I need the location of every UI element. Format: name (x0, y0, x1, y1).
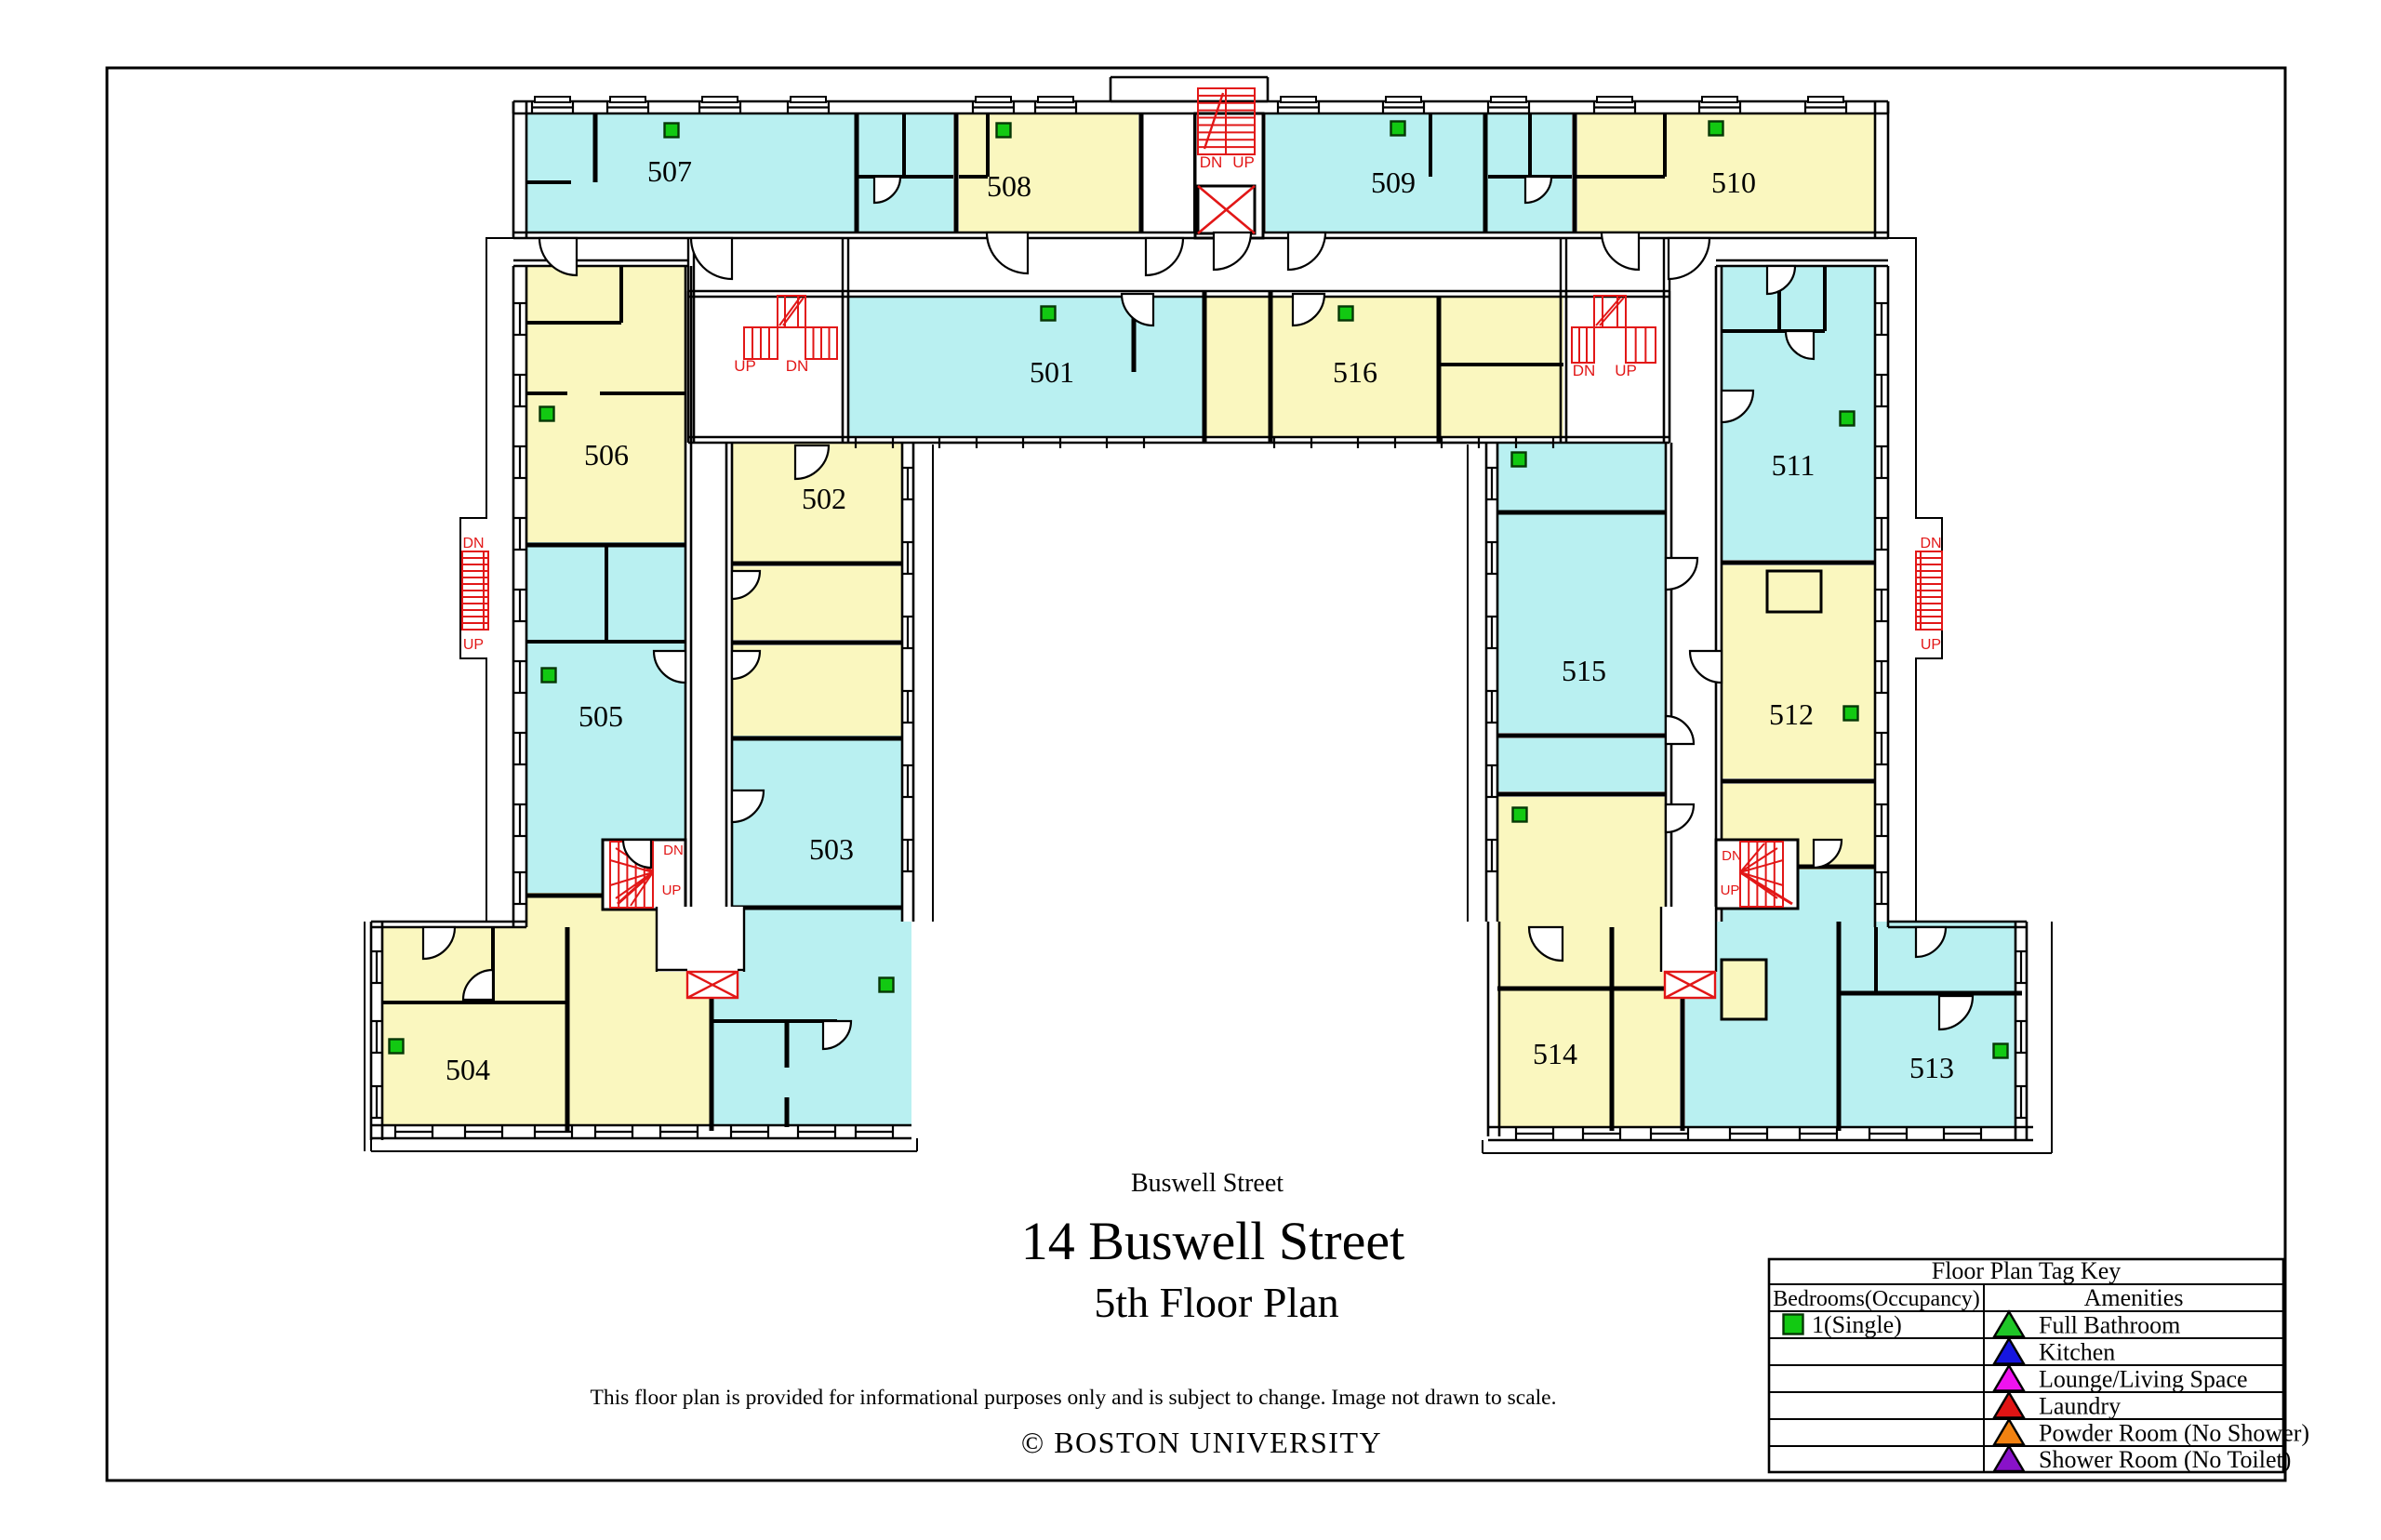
svg-text:UP: UP (1921, 637, 1941, 653)
svg-text:1(Single): 1(Single) (1812, 1311, 1902, 1338)
svg-text:© BOSTON UNIVERSITY: © BOSTON UNIVERSITY (1021, 1426, 1382, 1459)
svg-text:Buswell Street: Buswell Street (1131, 1169, 1284, 1198)
svg-text:Kitchen: Kitchen (2039, 1339, 2115, 1366)
svg-text:UP: UP (1615, 362, 1637, 379)
svg-text:Floor Plan Tag Key: Floor Plan Tag Key (1932, 1257, 2122, 1284)
svg-text:507: 507 (647, 154, 692, 188)
svg-text:511: 511 (1772, 448, 1816, 482)
svg-text:DN: DN (462, 536, 484, 551)
svg-text:Full Bathroom: Full Bathroom (2039, 1312, 2180, 1339)
svg-text:5th Floor Plan: 5th Floor Plan (1094, 1279, 1338, 1326)
svg-text:DN: DN (1722, 848, 1742, 864)
svg-text:14 Buswell Street: 14 Buswell Street (1021, 1211, 1404, 1271)
svg-text:DN: DN (1920, 536, 1941, 551)
svg-text:512: 512 (1769, 697, 1814, 731)
svg-text:DN: DN (1573, 362, 1596, 379)
svg-text:504: 504 (446, 1053, 490, 1086)
svg-text:DN: DN (663, 843, 684, 858)
svg-text:506: 506 (584, 438, 629, 471)
svg-text:513: 513 (1909, 1051, 1954, 1084)
svg-text:515: 515 (1562, 654, 1606, 687)
svg-text:509: 509 (1371, 166, 1416, 199)
svg-text:This floor plan is provided fo: This floor plan is provided for informat… (591, 1386, 1557, 1410)
svg-text:508: 508 (987, 169, 1031, 203)
svg-text:516: 516 (1333, 355, 1377, 389)
svg-text:UP: UP (734, 357, 756, 375)
svg-text:UP: UP (463, 637, 484, 653)
svg-text:Bedrooms(Occupancy): Bedrooms(Occupancy) (1773, 1287, 1980, 1311)
svg-text:Shower Room (No Toilet): Shower Room (No Toilet) (2039, 1446, 2291, 1473)
svg-text:UP: UP (1721, 883, 1740, 898)
svg-text:502: 502 (802, 482, 846, 515)
svg-text:505: 505 (579, 699, 623, 733)
svg-text:Laundry: Laundry (2039, 1393, 2121, 1420)
svg-text:Powder Room (No Shower): Powder Room (No Shower) (2039, 1420, 2309, 1447)
svg-text:DN: DN (786, 357, 809, 375)
svg-text:501: 501 (1030, 355, 1074, 389)
svg-text:503: 503 (809, 832, 854, 866)
svg-text:Lounge/Living Space: Lounge/Living Space (2039, 1366, 2248, 1393)
svg-text:510: 510 (1711, 166, 1756, 199)
svg-text:Amenities: Amenities (2084, 1284, 2184, 1311)
svg-text:UP: UP (662, 883, 682, 898)
svg-text:DN: DN (1200, 153, 1223, 171)
svg-text:514: 514 (1533, 1037, 1577, 1070)
svg-text:UP: UP (1232, 153, 1255, 171)
